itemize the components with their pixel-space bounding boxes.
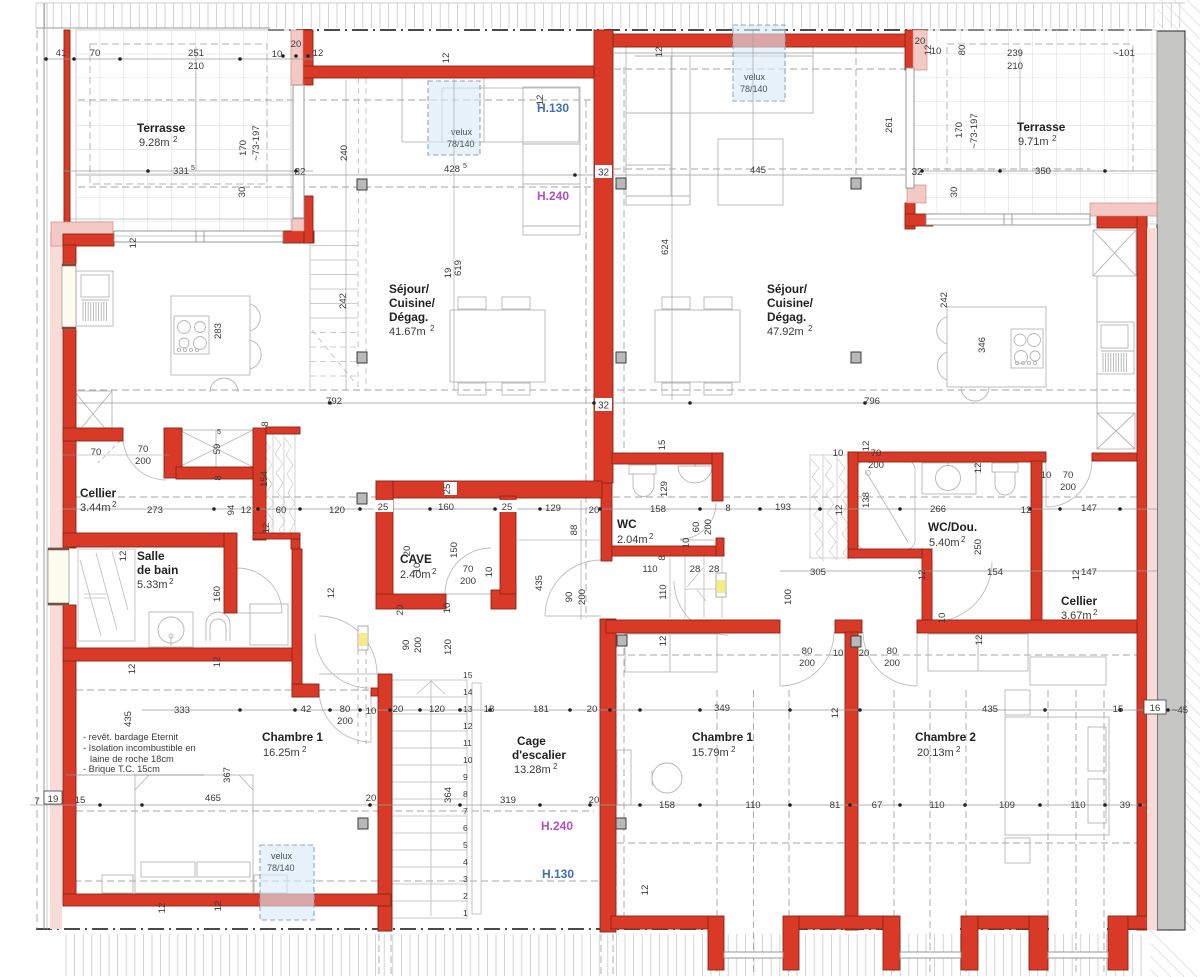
svg-text:19: 19 (443, 268, 454, 279)
svg-text:80: 80 (957, 45, 968, 56)
svg-text:20: 20 (859, 648, 870, 659)
svg-text:20: 20 (589, 795, 600, 806)
svg-text:210: 210 (1007, 61, 1023, 72)
svg-text:10: 10 (412, 563, 423, 574)
svg-text:160: 160 (212, 586, 223, 602)
svg-text:8: 8 (260, 421, 271, 426)
svg-text:465: 465 (205, 793, 221, 804)
svg-text:78/140: 78/140 (447, 139, 475, 149)
svg-text:6: 6 (463, 823, 468, 833)
svg-text:200: 200 (799, 658, 815, 669)
svg-text:170: 170 (238, 140, 249, 156)
svg-text:10: 10 (463, 755, 473, 765)
svg-text:laine de roche 18cm: laine de roche 18cm (90, 754, 174, 764)
svg-text:59: 59 (212, 444, 223, 455)
svg-text:158: 158 (650, 504, 666, 515)
svg-text:150: 150 (449, 542, 460, 558)
svg-text:12: 12 (640, 885, 651, 896)
svg-text:273: 273 (147, 505, 163, 516)
svg-text:12: 12 (923, 45, 934, 56)
svg-text:WC/Dou.: WC/Dou. (928, 520, 977, 534)
svg-text:28: 28 (709, 564, 720, 575)
svg-text:2: 2 (173, 135, 178, 144)
svg-text:88: 88 (569, 525, 580, 536)
svg-text:10: 10 (484, 567, 495, 578)
svg-text:1: 1 (463, 908, 468, 918)
svg-text:12: 12 (212, 657, 223, 668)
svg-text:67: 67 (872, 800, 883, 811)
svg-text:12: 12 (118, 551, 129, 562)
svg-text:41: 41 (56, 48, 67, 59)
svg-text:10: 10 (366, 706, 377, 717)
svg-text:110: 110 (1070, 800, 1085, 811)
svg-text:619: 619 (453, 260, 464, 276)
svg-text:30: 30 (237, 187, 248, 198)
svg-text:200: 200 (577, 589, 588, 605)
svg-text:velux: velux (744, 72, 766, 82)
svg-text:2: 2 (112, 500, 117, 509)
svg-text:10: 10 (937, 613, 948, 624)
svg-text:60: 60 (276, 505, 287, 516)
svg-text:160: 160 (438, 502, 454, 513)
svg-text:Cellier: Cellier (80, 486, 116, 500)
svg-text:120: 120 (429, 704, 445, 715)
svg-text:39: 39 (1120, 800, 1131, 811)
svg-text:109: 109 (999, 800, 1015, 811)
svg-text:15: 15 (463, 670, 473, 680)
svg-text:28: 28 (690, 564, 701, 575)
svg-text:100: 100 (783, 589, 794, 605)
svg-text:242: 242 (939, 292, 950, 308)
svg-text:Terrasse: Terrasse (1017, 120, 1066, 134)
svg-text:8: 8 (657, 555, 668, 560)
svg-text:5: 5 (463, 163, 467, 170)
svg-text:70: 70 (871, 448, 882, 459)
svg-text:10: 10 (833, 648, 844, 659)
svg-text:- revêt. bardage Eternit: - revêt. bardage Eternit (83, 732, 179, 742)
svg-text:200: 200 (868, 460, 884, 471)
svg-text:9: 9 (463, 772, 468, 782)
svg-text:5: 5 (191, 165, 195, 172)
svg-text:2: 2 (731, 745, 736, 754)
svg-text:170: 170 (954, 122, 965, 138)
svg-text:d'escalier: d'escalier (512, 748, 566, 762)
svg-text:94: 94 (226, 504, 237, 515)
svg-text:200: 200 (460, 576, 476, 587)
svg-text:2: 2 (808, 324, 813, 333)
svg-text:266: 266 (930, 504, 946, 515)
svg-text:12: 12 (241, 505, 252, 516)
svg-text:15: 15 (657, 440, 668, 451)
svg-text:WC: WC (617, 517, 637, 531)
svg-text:10: 10 (681, 538, 692, 549)
svg-text:435: 435 (123, 711, 134, 727)
svg-text:H.240: H.240 (537, 189, 569, 203)
svg-text:80: 80 (887, 646, 898, 657)
svg-text:333: 333 (174, 705, 190, 716)
svg-text:138: 138 (861, 492, 872, 508)
svg-text:2: 2 (961, 535, 966, 544)
svg-text:792: 792 (326, 396, 342, 407)
svg-text:367: 367 (222, 767, 233, 783)
svg-text:20.13m: 20.13m (917, 747, 954, 759)
svg-text:20: 20 (291, 39, 302, 50)
svg-text:16.25m: 16.25m (263, 747, 300, 759)
svg-text:25: 25 (378, 502, 389, 513)
svg-text:2: 2 (649, 532, 654, 541)
svg-text:12: 12 (313, 48, 324, 59)
svg-text:12: 12 (1021, 505, 1032, 516)
svg-text:346: 346 (977, 337, 988, 353)
svg-text:129: 129 (545, 503, 561, 514)
svg-text:78/140: 78/140 (740, 84, 768, 94)
svg-text:de bain: de bain (137, 563, 178, 577)
svg-text:239: 239 (1007, 48, 1023, 59)
svg-text:120: 120 (443, 639, 454, 655)
svg-text:Cuisine/: Cuisine/ (389, 296, 436, 310)
svg-text:12: 12 (128, 238, 139, 249)
svg-text:12: 12 (654, 47, 665, 58)
svg-text:Dégag.: Dégag. (389, 310, 428, 324)
svg-text:154: 154 (987, 567, 1004, 578)
svg-text:129: 129 (659, 481, 670, 497)
svg-text:Chambre 2: Chambre 2 (915, 730, 976, 744)
svg-text:12: 12 (830, 708, 841, 719)
svg-text:147: 147 (1081, 567, 1097, 578)
svg-text:20: 20 (402, 546, 413, 557)
svg-text:435: 435 (982, 704, 998, 715)
svg-text:70: 70 (91, 447, 102, 458)
svg-text:- Brique T.C. 15cm: - Brique T.C. 15cm (83, 764, 160, 774)
svg-text:78/140: 78/140 (267, 863, 295, 873)
svg-text:193: 193 (775, 502, 791, 513)
svg-text:25: 25 (442, 484, 453, 495)
svg-text:12: 12 (326, 588, 337, 599)
svg-text:2: 2 (1093, 608, 1098, 617)
svg-text:8: 8 (213, 475, 224, 480)
svg-text:11: 11 (463, 738, 472, 748)
svg-text:2: 2 (432, 567, 437, 576)
svg-text:12: 12 (834, 505, 845, 516)
svg-text:2: 2 (956, 745, 961, 754)
svg-text:2: 2 (1052, 134, 1057, 143)
svg-text:624: 624 (660, 238, 671, 255)
svg-text:~45: ~45 (1172, 705, 1188, 716)
svg-text:13.28m: 13.28m (514, 764, 551, 776)
svg-text:12: 12 (658, 636, 669, 647)
svg-text:349: 349 (714, 703, 730, 714)
svg-text:283: 283 (213, 323, 224, 339)
svg-text:90: 90 (401, 640, 412, 651)
svg-text:60: 60 (691, 522, 702, 533)
svg-text:5: 5 (217, 429, 221, 436)
svg-text:10: 10 (833, 448, 844, 459)
svg-text:3: 3 (463, 874, 468, 884)
svg-text:70: 70 (1063, 470, 1074, 481)
svg-text:12: 12 (261, 523, 272, 534)
svg-text:80: 80 (802, 646, 813, 657)
svg-text:305: 305 (810, 567, 826, 578)
svg-text:12: 12 (974, 635, 985, 646)
svg-text:~73-197: ~73-197 (251, 125, 262, 160)
svg-text:Cellier: Cellier (1061, 594, 1097, 608)
svg-text:154: 154 (259, 470, 270, 487)
svg-text:Chambre 1: Chambre 1 (262, 730, 323, 744)
svg-text:10: 10 (442, 603, 453, 614)
svg-text:4: 4 (463, 857, 468, 867)
svg-text:15: 15 (1113, 704, 1124, 715)
svg-text:Cuisine/: Cuisine/ (767, 296, 814, 310)
svg-text:364: 364 (443, 786, 454, 803)
svg-text:Dégag.: Dégag. (767, 310, 806, 324)
svg-text:120: 120 (329, 505, 345, 516)
svg-text:15: 15 (75, 795, 86, 806)
svg-text:435: 435 (534, 575, 545, 591)
svg-text:90: 90 (564, 592, 575, 603)
svg-text:18: 18 (484, 704, 495, 715)
svg-text:2: 2 (302, 745, 307, 754)
svg-text:240: 240 (339, 145, 350, 161)
svg-text:12: 12 (157, 903, 168, 914)
svg-text:110: 110 (658, 584, 669, 599)
svg-text:41.67m: 41.67m (389, 326, 426, 338)
svg-text:Cage: Cage (517, 734, 546, 748)
svg-text:110: 110 (642, 564, 657, 575)
svg-text:13: 13 (463, 704, 473, 714)
svg-text:20: 20 (395, 605, 406, 616)
svg-text:3.67m: 3.67m (1061, 610, 1092, 622)
svg-text:110: 110 (745, 800, 760, 811)
svg-text:200: 200 (884, 658, 900, 669)
svg-text:261: 261 (884, 117, 895, 133)
svg-text:5.40m: 5.40m (929, 537, 960, 549)
svg-text:200: 200 (413, 637, 424, 653)
svg-text:5: 5 (463, 840, 468, 850)
svg-text:Terrasse: Terrasse (137, 121, 186, 135)
svg-text:110: 110 (929, 800, 944, 811)
svg-text:Séjour/: Séjour/ (767, 282, 808, 296)
svg-text:181: 181 (533, 704, 549, 715)
svg-text:242: 242 (338, 293, 349, 309)
svg-text:Séjour/: Séjour/ (389, 282, 430, 296)
svg-text:7: 7 (34, 796, 39, 807)
svg-text:20: 20 (589, 505, 600, 516)
svg-text:70: 70 (90, 48, 101, 59)
svg-text:250: 250 (973, 539, 984, 555)
svg-text:12: 12 (127, 664, 138, 675)
svg-text:32: 32 (598, 401, 610, 412)
svg-text:20: 20 (366, 793, 377, 804)
svg-text:12: 12 (441, 53, 452, 64)
svg-text:5.33m: 5.33m (137, 579, 168, 591)
svg-text:12: 12 (973, 463, 984, 474)
svg-text:2: 2 (463, 891, 468, 901)
svg-text:12: 12 (535, 95, 546, 106)
svg-text:15.79m: 15.79m (692, 747, 729, 759)
svg-text:velux: velux (271, 851, 293, 861)
svg-text:2: 2 (553, 762, 558, 771)
svg-text:210: 210 (188, 61, 204, 72)
svg-text:25: 25 (502, 502, 513, 513)
svg-text:796: 796 (864, 396, 880, 407)
svg-text:147: 147 (1081, 503, 1097, 514)
svg-text:12: 12 (917, 570, 928, 581)
svg-text:200: 200 (337, 716, 353, 727)
svg-text:70: 70 (138, 444, 149, 455)
svg-text:319: 319 (500, 795, 516, 806)
svg-text:8: 8 (725, 503, 730, 514)
svg-text:~73-197: ~73-197 (969, 113, 980, 148)
svg-text:20: 20 (587, 704, 598, 715)
svg-text:2: 2 (169, 577, 174, 586)
svg-text:251: 251 (188, 48, 204, 59)
svg-text:Chambre 1: Chambre 1 (692, 730, 753, 744)
svg-text:19: 19 (48, 794, 59, 805)
svg-text:~101: ~101 (1113, 48, 1135, 59)
svg-text:7: 7 (463, 806, 468, 816)
svg-text:2: 2 (430, 324, 435, 333)
svg-text:H.130: H.130 (542, 867, 574, 881)
svg-text:- Isolation incombustible en: - Isolation incombustible en (83, 743, 196, 753)
svg-text:42: 42 (301, 704, 312, 715)
svg-text:H.240: H.240 (541, 819, 573, 833)
svg-text:200: 200 (135, 456, 151, 467)
svg-text:80: 80 (340, 704, 351, 715)
svg-text:2.04m: 2.04m (617, 534, 648, 546)
svg-text:445: 445 (750, 165, 766, 176)
svg-text:428: 428 (444, 164, 460, 175)
svg-text:81: 81 (830, 800, 841, 811)
svg-text:200: 200 (1060, 482, 1076, 493)
svg-text:9.28m: 9.28m (139, 137, 170, 149)
svg-text:200: 200 (703, 519, 714, 535)
svg-text:30: 30 (949, 187, 960, 198)
svg-text:32: 32 (598, 168, 610, 179)
svg-text:10: 10 (272, 49, 283, 60)
svg-text:20: 20 (393, 704, 404, 715)
svg-text:12: 12 (463, 721, 473, 731)
svg-text:350: 350 (1035, 166, 1051, 177)
svg-text:10: 10 (1041, 470, 1052, 481)
svg-text:12: 12 (213, 901, 224, 912)
svg-text:70: 70 (463, 564, 474, 575)
svg-text:14: 14 (463, 687, 473, 697)
svg-text:8: 8 (463, 789, 468, 799)
svg-text:3.44m: 3.44m (80, 502, 111, 514)
svg-text:331: 331 (173, 166, 189, 177)
svg-text:158: 158 (659, 800, 675, 811)
svg-text:16: 16 (1150, 703, 1161, 714)
svg-text:Salle: Salle (137, 549, 165, 563)
svg-text:47.92m: 47.92m (767, 326, 804, 338)
svg-text:9.71m: 9.71m (1018, 136, 1049, 148)
